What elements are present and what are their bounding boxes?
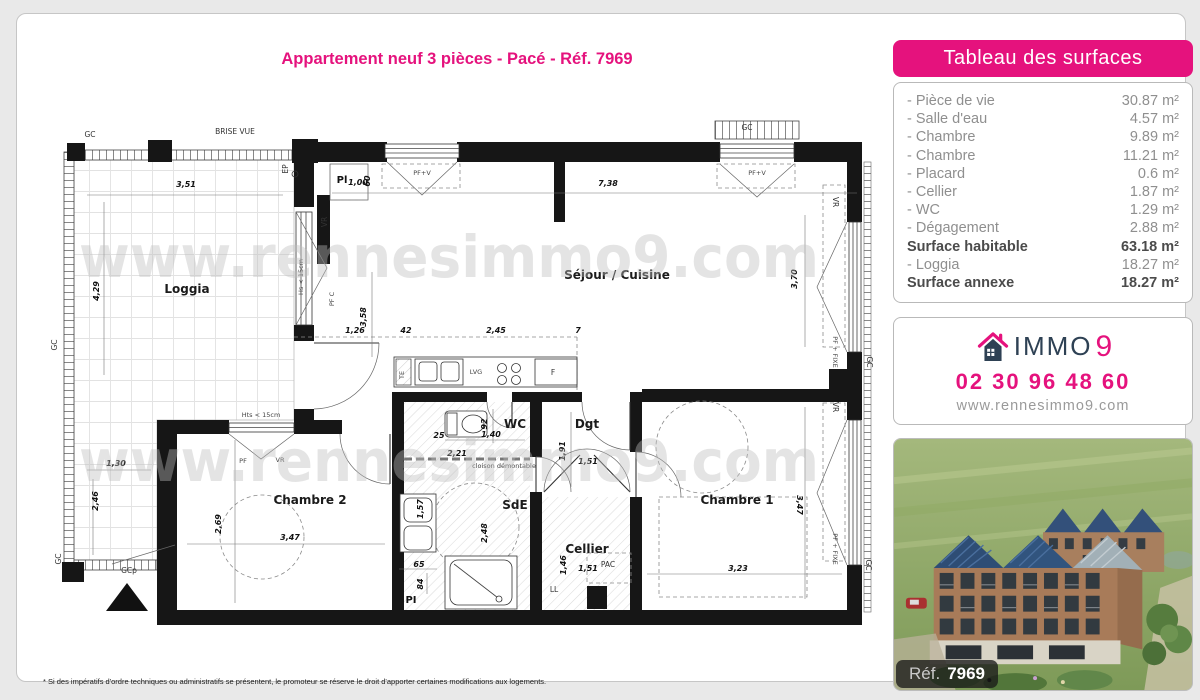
plan-label: 1,26 <box>345 326 365 335</box>
surface-row-value: 2.88 m² <box>1130 219 1179 237</box>
plan-label: PF + FIXE <box>831 336 839 367</box>
surface-row-label: Surface habitable <box>907 238 1028 256</box>
loggia-deck <box>74 160 294 560</box>
plan-label: PI <box>405 595 416 606</box>
surface-row: - Dégagement2.88 m² <box>907 219 1179 237</box>
surface-row-label: - Placard <box>907 165 965 183</box>
plan-label: LVG <box>470 368 482 376</box>
plan-label: 3,23 <box>728 564 748 573</box>
plan-label: PF+V <box>748 169 766 177</box>
plan-label: PF + FIXE <box>831 533 839 564</box>
plan-label: Cellier <box>565 542 608 556</box>
north-arrow <box>106 583 148 611</box>
plan-label: Chambre 2 <box>273 493 346 507</box>
plan-label: PAC <box>601 560 615 569</box>
surface-row: Surface habitable63.18 m² <box>907 238 1179 256</box>
plan-label: 1,51 <box>578 564 598 573</box>
plan-label: TE <box>398 371 406 380</box>
plan-label: 3,47 <box>795 495 804 515</box>
surface-row-label: Surface annexe <box>907 274 1014 292</box>
surface-row-label: - Loggia <box>907 256 959 274</box>
ref-number: 7969 <box>947 664 985 683</box>
plan-label: 7 <box>575 326 581 335</box>
surface-row: - Chambre11.21 m² <box>907 147 1179 165</box>
plan-label: Hts < 15cm <box>242 411 281 419</box>
surface-row-label: - Chambre <box>907 128 976 146</box>
surface-row-value: 18.27 m² <box>1122 256 1179 274</box>
house-icon <box>974 329 1012 365</box>
plan-label: 3,47 <box>280 533 300 542</box>
website-link[interactable]: www.rennesimmo9.com <box>957 398 1130 414</box>
agency-logo: IMMO 9 <box>974 329 1112 365</box>
footnote: * Si des impératifs d'ordre techniques o… <box>43 677 743 686</box>
plan-label: GCp <box>121 566 137 575</box>
plan-label: 1,46 <box>559 555 568 575</box>
plan-label: 84 <box>416 578 425 590</box>
plan-label: EP <box>281 164 290 174</box>
plan-label: 1,57 <box>416 499 425 519</box>
surfaces-title: Tableau des surfaces <box>943 47 1142 70</box>
surface-row-value: 9.89 m² <box>1130 128 1179 146</box>
plan-label: VR <box>831 402 840 412</box>
surface-row-value: 63.18 m² <box>1121 238 1179 256</box>
surface-row-label: - Dégagement <box>907 219 999 237</box>
surface-row-value: 4.57 m² <box>1130 110 1179 128</box>
surface-row-value: 11.21 m² <box>1123 147 1179 165</box>
plan-label: GC <box>741 123 752 132</box>
plan-label: SdE <box>502 498 527 512</box>
plan-label: 65 <box>413 560 425 569</box>
plan-label: 3,51 <box>176 180 196 189</box>
watermark-text: www.rennesimmo9.com <box>79 223 819 291</box>
plan-label: Pl <box>337 175 348 186</box>
brand-9: 9 <box>1096 330 1113 364</box>
ref-label: Réf. <box>909 664 940 683</box>
plan-label: 3,58 <box>359 307 368 327</box>
surface-row: - Loggia18.27 m² <box>907 256 1179 274</box>
page-title: Appartement neuf 3 pièces - Pacé - Réf. … <box>47 50 867 69</box>
plan-label: VR <box>831 197 840 207</box>
watermark-text: www.rennesimmo9.com <box>79 427 819 495</box>
plan-label: 7,38 <box>598 179 618 188</box>
plan-label: GC <box>864 559 873 570</box>
plan-label: 60 <box>363 175 372 187</box>
plan-label: 42 <box>399 326 412 335</box>
plan-label: PF+V <box>413 169 431 177</box>
surface-row: - Salle d'eau4.57 m² <box>907 110 1179 128</box>
surface-row-label: - Pièce de vie <box>907 92 995 110</box>
plan-label: F <box>551 368 555 377</box>
building-render <box>894 439 1192 690</box>
plan-label: GC <box>54 553 63 564</box>
surface-row-value: 1.29 m² <box>1130 201 1179 219</box>
building-photo: Réf.7969 <box>893 438 1193 691</box>
surface-row: - WC1.29 m² <box>907 201 1179 219</box>
brand-immo: IMMO <box>1014 331 1093 362</box>
plan-label: PF C <box>328 291 336 306</box>
surface-row-value: 0.6 m² <box>1138 165 1179 183</box>
surfaces-table: - Pièce de vie30.87 m²- Salle d'eau4.57 … <box>893 82 1193 303</box>
plan-label: BRISE VUE <box>215 127 255 136</box>
floor-plan: LoggiaSéjour / CuisineChambre 2Chambre 1… <box>47 107 892 669</box>
plan-label: 2,48 <box>480 523 489 543</box>
surface-row: Surface annexe18.27 m² <box>907 274 1179 292</box>
surface-row: - Pièce de vie30.87 m² <box>907 92 1179 110</box>
agency-box: IMMO 9 02 30 96 48 60 www.rennesimmo9.co… <box>893 317 1193 425</box>
surface-row: - Placard0.6 m² <box>907 165 1179 183</box>
plan-label: GC <box>50 339 59 350</box>
plan-label: 2,45 <box>486 326 506 335</box>
surface-row-value: 18.27 m² <box>1121 274 1179 292</box>
surface-row: - Cellier1.87 m² <box>907 183 1179 201</box>
plan-label: 2,69 <box>214 514 223 534</box>
plan-label: GC <box>84 130 95 139</box>
plan-label: GC <box>865 356 874 367</box>
phone-number[interactable]: 02 30 96 48 60 <box>956 369 1131 395</box>
plan-label: Chambre 1 <box>700 493 773 507</box>
surface-row: - Chambre9.89 m² <box>907 128 1179 146</box>
brochure-card: Appartement neuf 3 pièces - Pacé - Réf. … <box>16 13 1186 682</box>
surface-row-label: - Salle d'eau <box>907 110 987 128</box>
surfaces-header: Tableau des surfaces <box>893 40 1193 77</box>
surface-row-value: 30.87 m² <box>1122 92 1179 110</box>
photo-ref-badge: Réf.7969 <box>896 660 998 688</box>
surface-row-label: - WC <box>907 201 940 219</box>
surface-row-label: - Cellier <box>907 183 957 201</box>
surface-row-label: - Chambre <box>907 147 976 165</box>
plan-label: LL <box>550 585 559 594</box>
surface-row-value: 1.87 m² <box>1130 183 1179 201</box>
